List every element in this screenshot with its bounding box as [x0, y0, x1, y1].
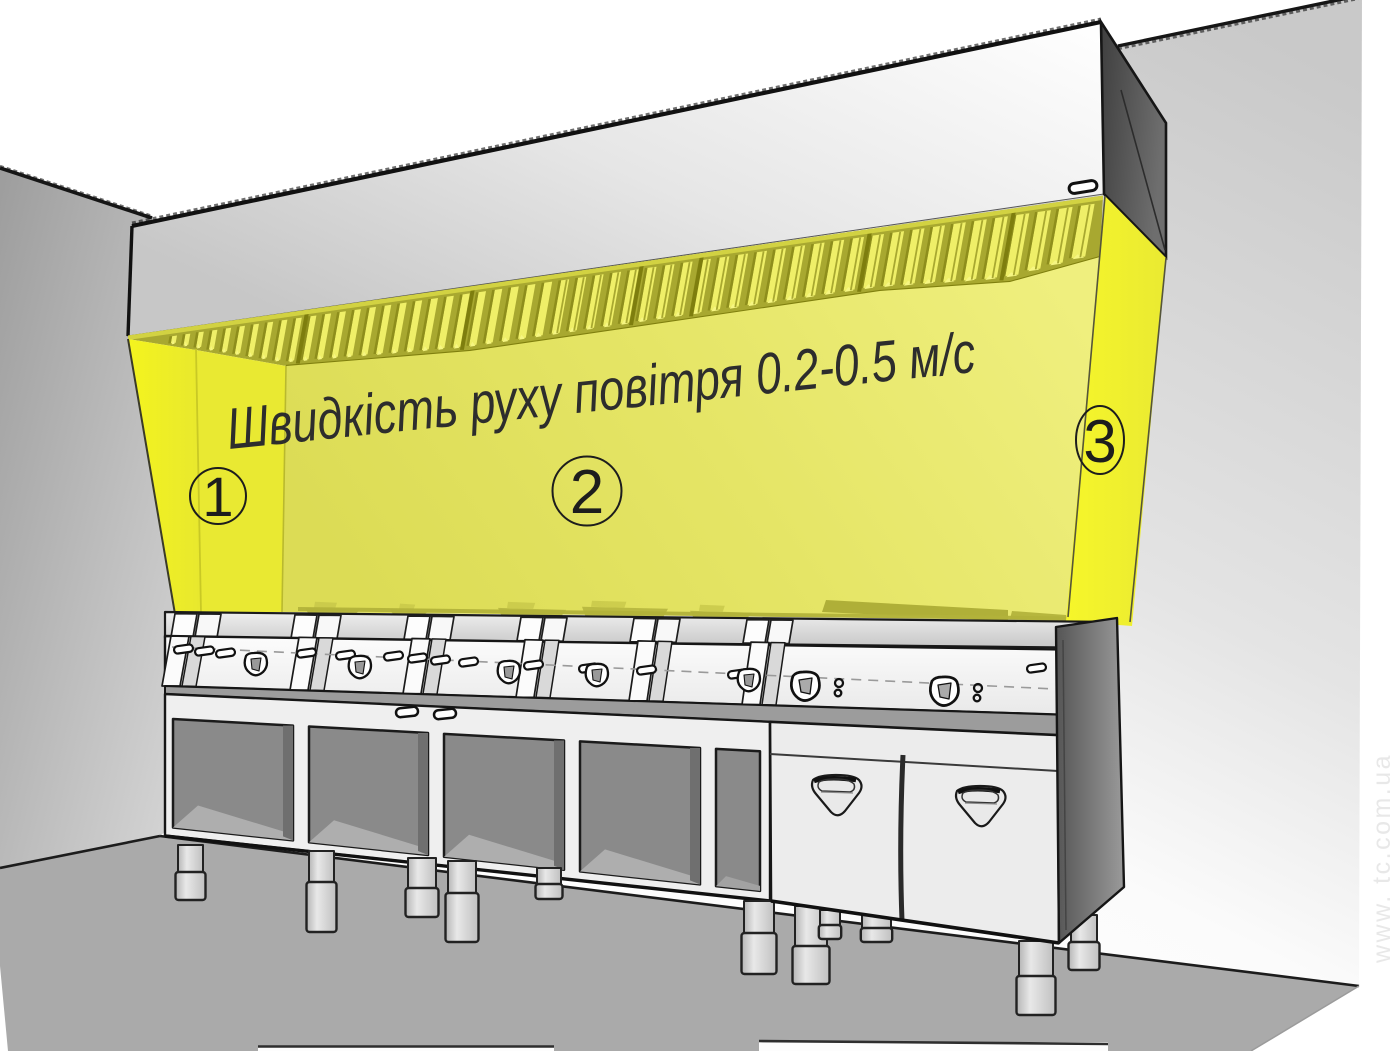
svg-text:2: 2: [570, 458, 604, 527]
svg-text:www. tc.com.ua: www. tc.com.ua: [1368, 753, 1396, 964]
svg-text:1: 1: [202, 465, 233, 528]
svg-text:3: 3: [1083, 408, 1116, 475]
